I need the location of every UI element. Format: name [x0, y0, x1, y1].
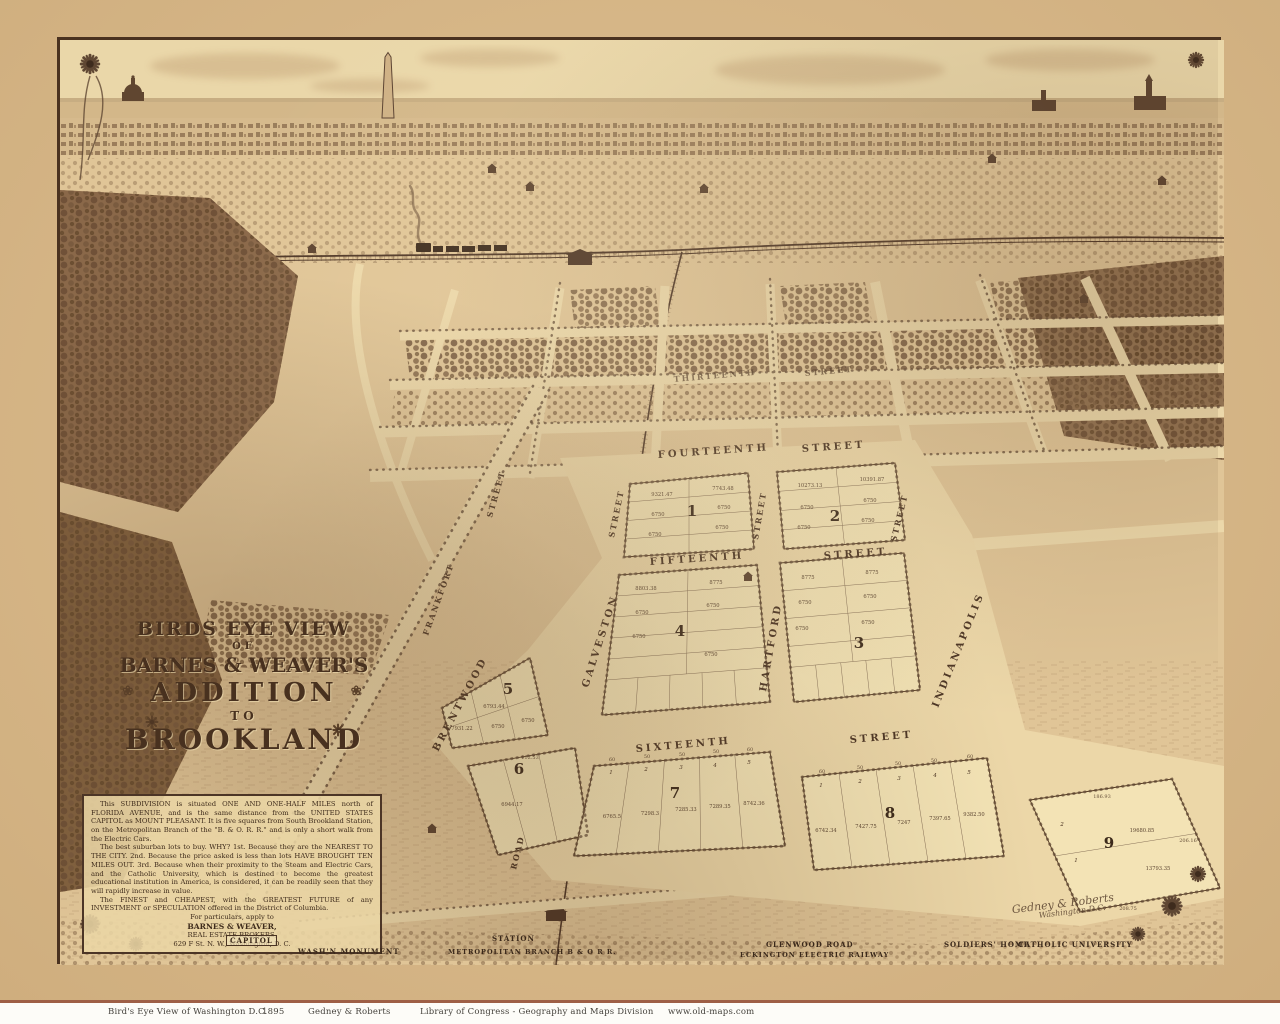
caption-website: www.old-maps.com — [668, 1007, 754, 1017]
description-paragraph-1: This SUBDIVISION is situated ONE AND ONE… — [91, 800, 373, 843]
block-6-number: 6 — [514, 760, 524, 778]
lot-value: 7298.3 — [641, 811, 659, 817]
promotional-text-box: This SUBDIVISION is situated ONE AND ONE… — [82, 794, 382, 954]
lot-width: 50 — [679, 752, 685, 758]
lot-value: 8775 — [709, 580, 722, 586]
block-5-number: 5 — [503, 680, 513, 698]
lot-value: 6750 — [795, 626, 808, 632]
lot-value: 10391.87 — [860, 477, 885, 483]
lot-width: 60 — [967, 754, 973, 760]
lot-value: 7397.65 — [929, 816, 950, 822]
lot-number: 1 — [1074, 858, 1078, 864]
lot-value: 8742.36 — [743, 801, 764, 807]
lot-value: 6750 — [861, 620, 874, 626]
block-4-number: 4 — [675, 622, 685, 640]
lot-value: 19680.85 — [1130, 828, 1155, 834]
lot-value: 6750 — [521, 718, 534, 724]
lot-value: 6750 — [717, 505, 730, 511]
block-9-number: 9 — [1104, 834, 1114, 852]
caption-source: Library of Congress - Geography and Maps… — [420, 1007, 654, 1017]
edge-value: 186.93 — [1093, 794, 1111, 800]
edge-value: 112.53 — [521, 755, 539, 761]
firm-name: BARNES & WEAVER, — [91, 922, 373, 932]
lot-number: 4 — [712, 763, 717, 769]
lot-value: 6793.44 — [483, 704, 505, 710]
lot-value: 8775 — [801, 575, 814, 581]
lot-width: 50 — [895, 761, 901, 767]
edge-value: 206.16 — [1179, 838, 1197, 844]
lot-value: 9321.47 — [651, 492, 672, 498]
label-catholic-university: CATHOLIC UNIVERSITY — [1018, 940, 1133, 949]
lot-number: 5 — [967, 770, 971, 776]
lot-value: 8803.38 — [635, 586, 656, 592]
lot-value: 6742.34 — [815, 828, 837, 834]
sunflower-icon — [1189, 53, 1203, 67]
map-title: BIRDS EYE VIEW OF BARNES & WEAVER'S ❀ AD… — [118, 620, 370, 755]
title-line-2: OF — [118, 642, 370, 653]
lot-width: 60 — [747, 747, 753, 753]
label-station: STATION — [492, 934, 535, 943]
label-metropolitan-branch: METROPOLITAN BRANCH B & O R R. — [448, 948, 617, 956]
sunflower-icon — [1163, 897, 1181, 915]
lot-number: 2 — [643, 767, 648, 773]
lot-number: 1 — [609, 770, 613, 776]
sunflower-icon — [1132, 928, 1145, 941]
lot-value: 7285.33 — [675, 807, 696, 813]
lot-value: 6750 — [861, 518, 874, 524]
block-8-number: 8 — [885, 804, 895, 822]
lot-number: 2 — [857, 779, 862, 785]
sunflower-icon — [1191, 867, 1205, 881]
lot-value: 6750 — [632, 634, 645, 640]
caption-year: 1895 — [262, 1007, 284, 1017]
sunflower-icon — [81, 55, 99, 73]
lot-value: 6750 — [800, 505, 813, 511]
lot-value: 7427.75 — [855, 824, 876, 830]
lot-value: 7743.48 — [712, 486, 733, 492]
daisy-icon: ❀ — [122, 684, 137, 699]
lot-value: 13793.35 — [1146, 866, 1171, 872]
lot-value: 6750 — [635, 610, 648, 616]
caption-publisher: Gedney & Roberts — [308, 1007, 391, 1017]
lot-value: 7247 — [897, 820, 910, 826]
lot-value: 6765.5 — [603, 814, 621, 820]
lot-number: 5 — [747, 760, 751, 766]
title-line-4: ❀ ADDITION ❀ — [118, 680, 370, 707]
lot-value: 7289.35 — [709, 804, 730, 810]
lot-value: 6750 — [491, 724, 504, 730]
title-line-6: BROOKLAND — [118, 725, 370, 754]
label-eckington-railway: ECKINGTON ELECTRIC RAILWAY — [740, 951, 889, 959]
title-line-1: BIRDS EYE VIEW — [118, 620, 370, 640]
apply-line: For particulars, apply to — [91, 913, 373, 922]
title-line-5: TO — [118, 710, 370, 723]
block-2-number: 2 — [830, 507, 840, 525]
lot-number: 3 — [897, 776, 901, 782]
footer-caption: Bird's Eye View of Washington D.C. 1895 … — [0, 1003, 1280, 1024]
lot-width: 50 — [857, 765, 863, 771]
lot-value: 6750 — [651, 512, 664, 518]
lot-value: 10273.13 — [798, 483, 823, 489]
lot-value: 6750 — [706, 603, 719, 609]
description-paragraph-3: The FINEST and CHEAPEST, with the GREATE… — [91, 896, 373, 913]
caption-title: Bird's Eye View of Washington D.C. — [108, 1007, 267, 1017]
lot-value: 6750 — [704, 652, 717, 658]
lot-width: 50 — [931, 758, 937, 764]
description-paragraph-2: The best suburban lots to buy. WHY? 1st.… — [91, 843, 373, 895]
label-capitol: CAPITOL — [226, 935, 277, 946]
lot-value: 6750 — [715, 525, 728, 531]
lot-value: 6750 — [798, 600, 811, 606]
lot-value: 6750 — [648, 532, 661, 538]
block-4 — [602, 565, 770, 715]
block-1-number: 1 — [687, 502, 697, 520]
lot-value: 6750 — [863, 498, 876, 504]
lot-number: 3 — [679, 765, 683, 771]
label-glenwood-road: GLENWOOD ROAD — [766, 940, 854, 949]
lot-width: 60 — [819, 769, 825, 775]
block-7-number: 7 — [670, 784, 680, 802]
lot-value: 6750 — [863, 594, 876, 600]
lot-value: 8775 — [865, 570, 878, 576]
label-washington-monument: WASH'N MONUMENT — [298, 947, 400, 956]
lot-width: 60 — [609, 757, 615, 763]
lot-width: 50 — [644, 754, 650, 760]
block-3-number: 3 — [854, 634, 864, 652]
lot-number: 1 — [819, 783, 823, 789]
lot-number: 4 — [932, 773, 937, 779]
edge-value: 208.75 — [1119, 906, 1137, 912]
lot-value: 6944.17 — [501, 802, 522, 808]
title-line-3: BARNES & WEAVER'S — [118, 655, 370, 676]
lot-value: 9382.50 — [963, 812, 984, 818]
lot-number: 2 — [1059, 822, 1064, 828]
lot-width: 50 — [713, 749, 719, 755]
lot-value: 6750 — [797, 525, 810, 531]
daisy-icon: ❀ — [351, 684, 366, 699]
